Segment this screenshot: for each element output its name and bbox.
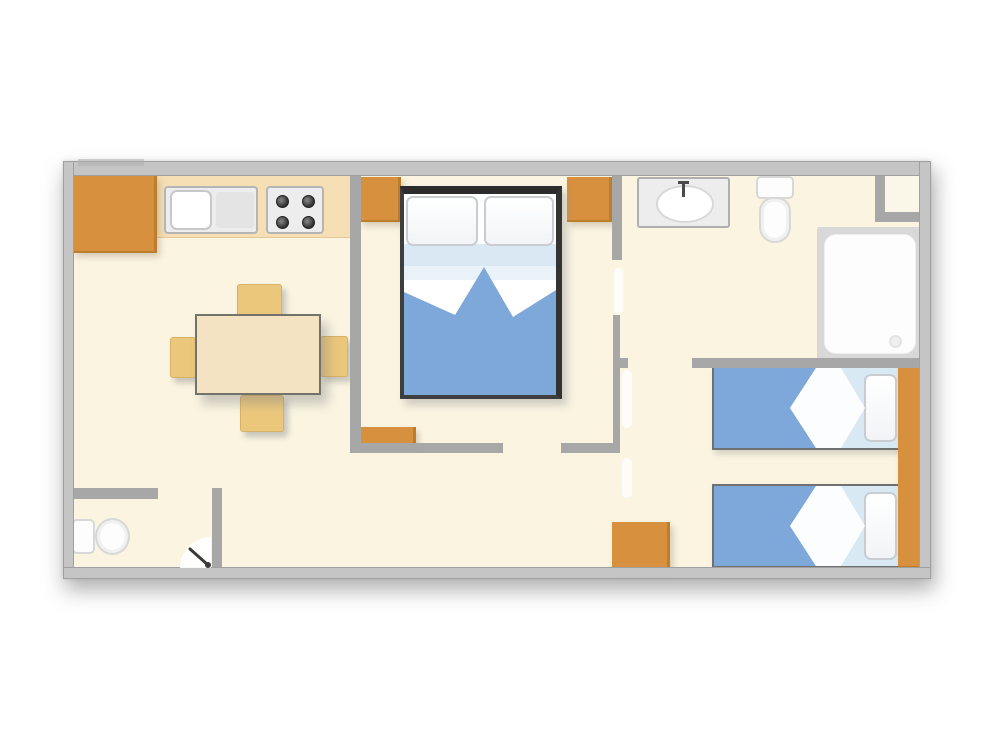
- sink-unit: [164, 186, 258, 234]
- double-bed: [400, 186, 562, 399]
- floor-plan: [0, 0, 1000, 750]
- niche-floor: [885, 171, 919, 212]
- wardrobe-cabinet: [567, 177, 612, 222]
- stove-burner: [302, 195, 315, 208]
- blanket-zigzag: [404, 194, 556, 395]
- wc-door-arc: [178, 533, 212, 569]
- wall-door-stub: [620, 358, 628, 368]
- wall-outer-left: [63, 161, 74, 579]
- shower-drain: [889, 335, 902, 348]
- stove-burner: [302, 216, 315, 229]
- door-leaf: [622, 458, 632, 498]
- single-bed: [712, 484, 900, 568]
- stove: [266, 186, 324, 234]
- wall-outer-top: [63, 161, 931, 176]
- wall-window-mark: [78, 159, 144, 166]
- single-bed: [712, 366, 900, 450]
- stove-burner: [276, 216, 289, 229]
- wall-outer-right: [919, 161, 931, 579]
- toilet-bowl: [759, 197, 791, 243]
- wall-bedroom-bathroom-lower: [613, 315, 620, 453]
- blanket-fold: [714, 486, 898, 566]
- dining-table: [195, 314, 321, 395]
- stove-burner: [276, 195, 289, 208]
- washbasin: [637, 177, 730, 228]
- sink-basin: [170, 190, 212, 230]
- wall-wc-top: [63, 488, 158, 499]
- wall-bedroom-south-a: [350, 443, 503, 453]
- shower-base: [824, 234, 916, 354]
- faucet-icon: [678, 181, 689, 184]
- dining-chair-top: [237, 284, 282, 316]
- washbasin-bowl: [656, 185, 714, 223]
- door-leaf: [622, 370, 632, 428]
- dining-chair-bottom: [240, 395, 284, 432]
- wall-bathroom-twinroom: [692, 358, 931, 368]
- wc-toilet-bowl: [95, 518, 130, 555]
- shower-tray: [817, 227, 923, 361]
- door-leaf: [614, 268, 623, 314]
- blanket-fold: [714, 368, 898, 448]
- wall-bedroom-south-b: [561, 443, 620, 453]
- wall-living-bedroom: [350, 161, 361, 453]
- toilet-tank: [756, 176, 794, 199]
- storage-cabinet: [612, 522, 670, 569]
- wardrobe-cabinet: [360, 177, 401, 222]
- wardrobe-strip: [898, 366, 920, 568]
- dining-chair-right: [320, 336, 348, 377]
- dining-chair-left: [170, 337, 196, 378]
- wall-wc-right: [212, 488, 222, 579]
- refrigerator-cabinet: [73, 176, 157, 253]
- drainboard: [216, 192, 254, 228]
- wc-toilet-tank: [72, 519, 95, 554]
